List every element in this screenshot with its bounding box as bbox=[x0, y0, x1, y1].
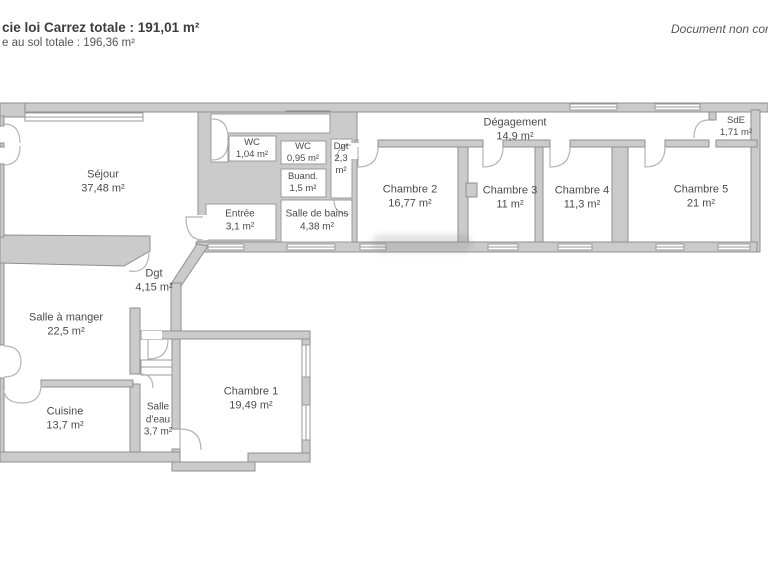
room-label-salle-de-bains: Salle de bains4,38 m² bbox=[286, 209, 349, 234]
floor-plan-drawing bbox=[0, 0, 768, 576]
room-label-dgt-4: Dgt4,15 m² bbox=[135, 267, 172, 295]
room-label-salle-d-eau: Salle d'eau3,7 m² bbox=[138, 401, 178, 439]
room-label-chambre-3: Chambre 311 m² bbox=[483, 184, 537, 212]
room-label-buanderie: Buand.1,5 m² bbox=[288, 171, 318, 195]
room-label-sde: SdE1,71 m² bbox=[720, 115, 752, 139]
watermark bbox=[372, 234, 472, 252]
room-label-chambre-1: Chambre 119,49 m² bbox=[224, 385, 278, 413]
room-label-cuisine: Cuisine13,7 m² bbox=[46, 405, 83, 433]
room-label-dgt-2: Dgt2,3 m² bbox=[328, 141, 354, 177]
walls bbox=[0, 103, 768, 471]
room-label-degagement: Dégagement14,9 m² bbox=[484, 116, 547, 144]
room-label-salle-a-manger: Salle à manger22,5 m² bbox=[29, 311, 103, 339]
floor-plan-page: cie loi Carrez totale : 191,01 m² e au s… bbox=[0, 0, 768, 576]
room-label-chambre-5: Chambre 521 m² bbox=[674, 183, 728, 211]
room-label-entree: Entrée3,1 m² bbox=[225, 209, 254, 234]
room-label-wc-1: WC1,04 m² bbox=[236, 137, 268, 161]
room-label-sejour: Séjour37,48 m² bbox=[81, 168, 124, 196]
room-label-chambre-4: Chambre 411,3 m² bbox=[555, 184, 609, 212]
room-label-wc-2: WC0,95 m² bbox=[287, 141, 319, 165]
room-label-chambre-2: Chambre 216,77 m² bbox=[383, 183, 437, 211]
